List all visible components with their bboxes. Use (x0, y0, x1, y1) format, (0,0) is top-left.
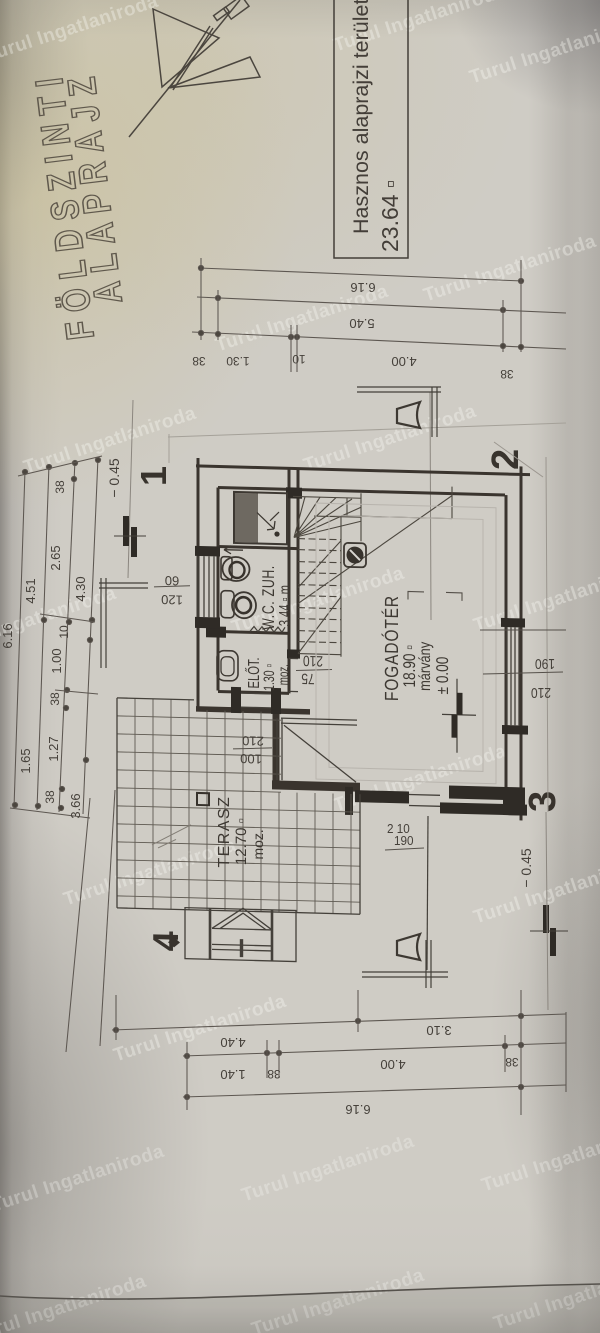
svg-text:6.16: 6.16 (345, 1102, 370, 1117)
svg-text:5.40: 5.40 (349, 316, 374, 331)
svg-text:TERASZ: TERASZ (216, 795, 233, 868)
svg-text:2.65: 2.65 (48, 545, 63, 570)
svg-text:190: 190 (394, 833, 414, 848)
svg-text:38: 38 (505, 1055, 519, 1069)
svg-text:6.16: 6.16 (350, 280, 375, 295)
svg-text:moz.: moz. (275, 664, 291, 686)
svg-text:10: 10 (292, 352, 306, 366)
svg-text:1.65: 1.65 (18, 748, 33, 773)
svg-text:100: 100 (240, 751, 262, 767)
svg-text:1.00: 1.00 (49, 648, 64, 673)
svg-text:38: 38 (43, 790, 57, 804)
svg-text:12.70 ▫: 12.70 ▫ (233, 818, 250, 865)
svg-text:FOGADÓTÉR: FOGADÓTÉR (381, 595, 403, 702)
svg-text:4: 4 (145, 931, 186, 952)
svg-text:23.64 ▫: 23.64 ▫ (377, 180, 403, 252)
svg-text:1.40: 1.40 (220, 1067, 245, 1082)
svg-text:± 0.00: ± 0.00 (434, 656, 453, 694)
svg-text:3.10: 3.10 (426, 1023, 451, 1038)
svg-text:3: 3 (522, 791, 564, 812)
svg-text:6.16: 6.16 (0, 623, 15, 648)
svg-text:10: 10 (57, 625, 71, 639)
svg-text:1: 1 (133, 466, 174, 486)
svg-text:− 0.45: − 0.45 (106, 458, 122, 498)
svg-text:120: 120 (161, 592, 183, 608)
svg-text:190: 190 (535, 656, 555, 673)
svg-text:210: 210 (531, 685, 551, 702)
svg-text:4.00: 4.00 (391, 354, 416, 369)
svg-text:3.44 ▫ m: 3.44 ▫ m (275, 585, 294, 627)
svg-text:1.30: 1.30 (226, 354, 250, 368)
svg-text:75: 75 (301, 670, 314, 687)
svg-text:38: 38 (48, 692, 62, 706)
svg-text:38: 38 (267, 1067, 281, 1081)
svg-text:márvány: márvány (417, 641, 435, 691)
svg-text:38: 38 (53, 480, 67, 494)
svg-text:moz.: moz. (250, 829, 266, 860)
svg-text:210: 210 (242, 733, 264, 749)
svg-text:4.51: 4.51 (23, 578, 38, 603)
svg-text:4.30: 4.30 (73, 576, 88, 601)
svg-text:4.00: 4.00 (380, 1057, 405, 1072)
svg-text:1.27: 1.27 (46, 736, 61, 761)
svg-text:38: 38 (192, 354, 206, 368)
svg-text:210: 210 (303, 652, 323, 669)
svg-text:Hasznos alaprajzi terület:: Hasznos alaprajzi terület: (349, 0, 373, 234)
svg-text:38: 38 (500, 367, 514, 381)
svg-text:− 0.45: − 0.45 (518, 848, 534, 888)
svg-text:3.66: 3.66 (68, 793, 83, 818)
svg-text:4.40: 4.40 (220, 1035, 245, 1050)
